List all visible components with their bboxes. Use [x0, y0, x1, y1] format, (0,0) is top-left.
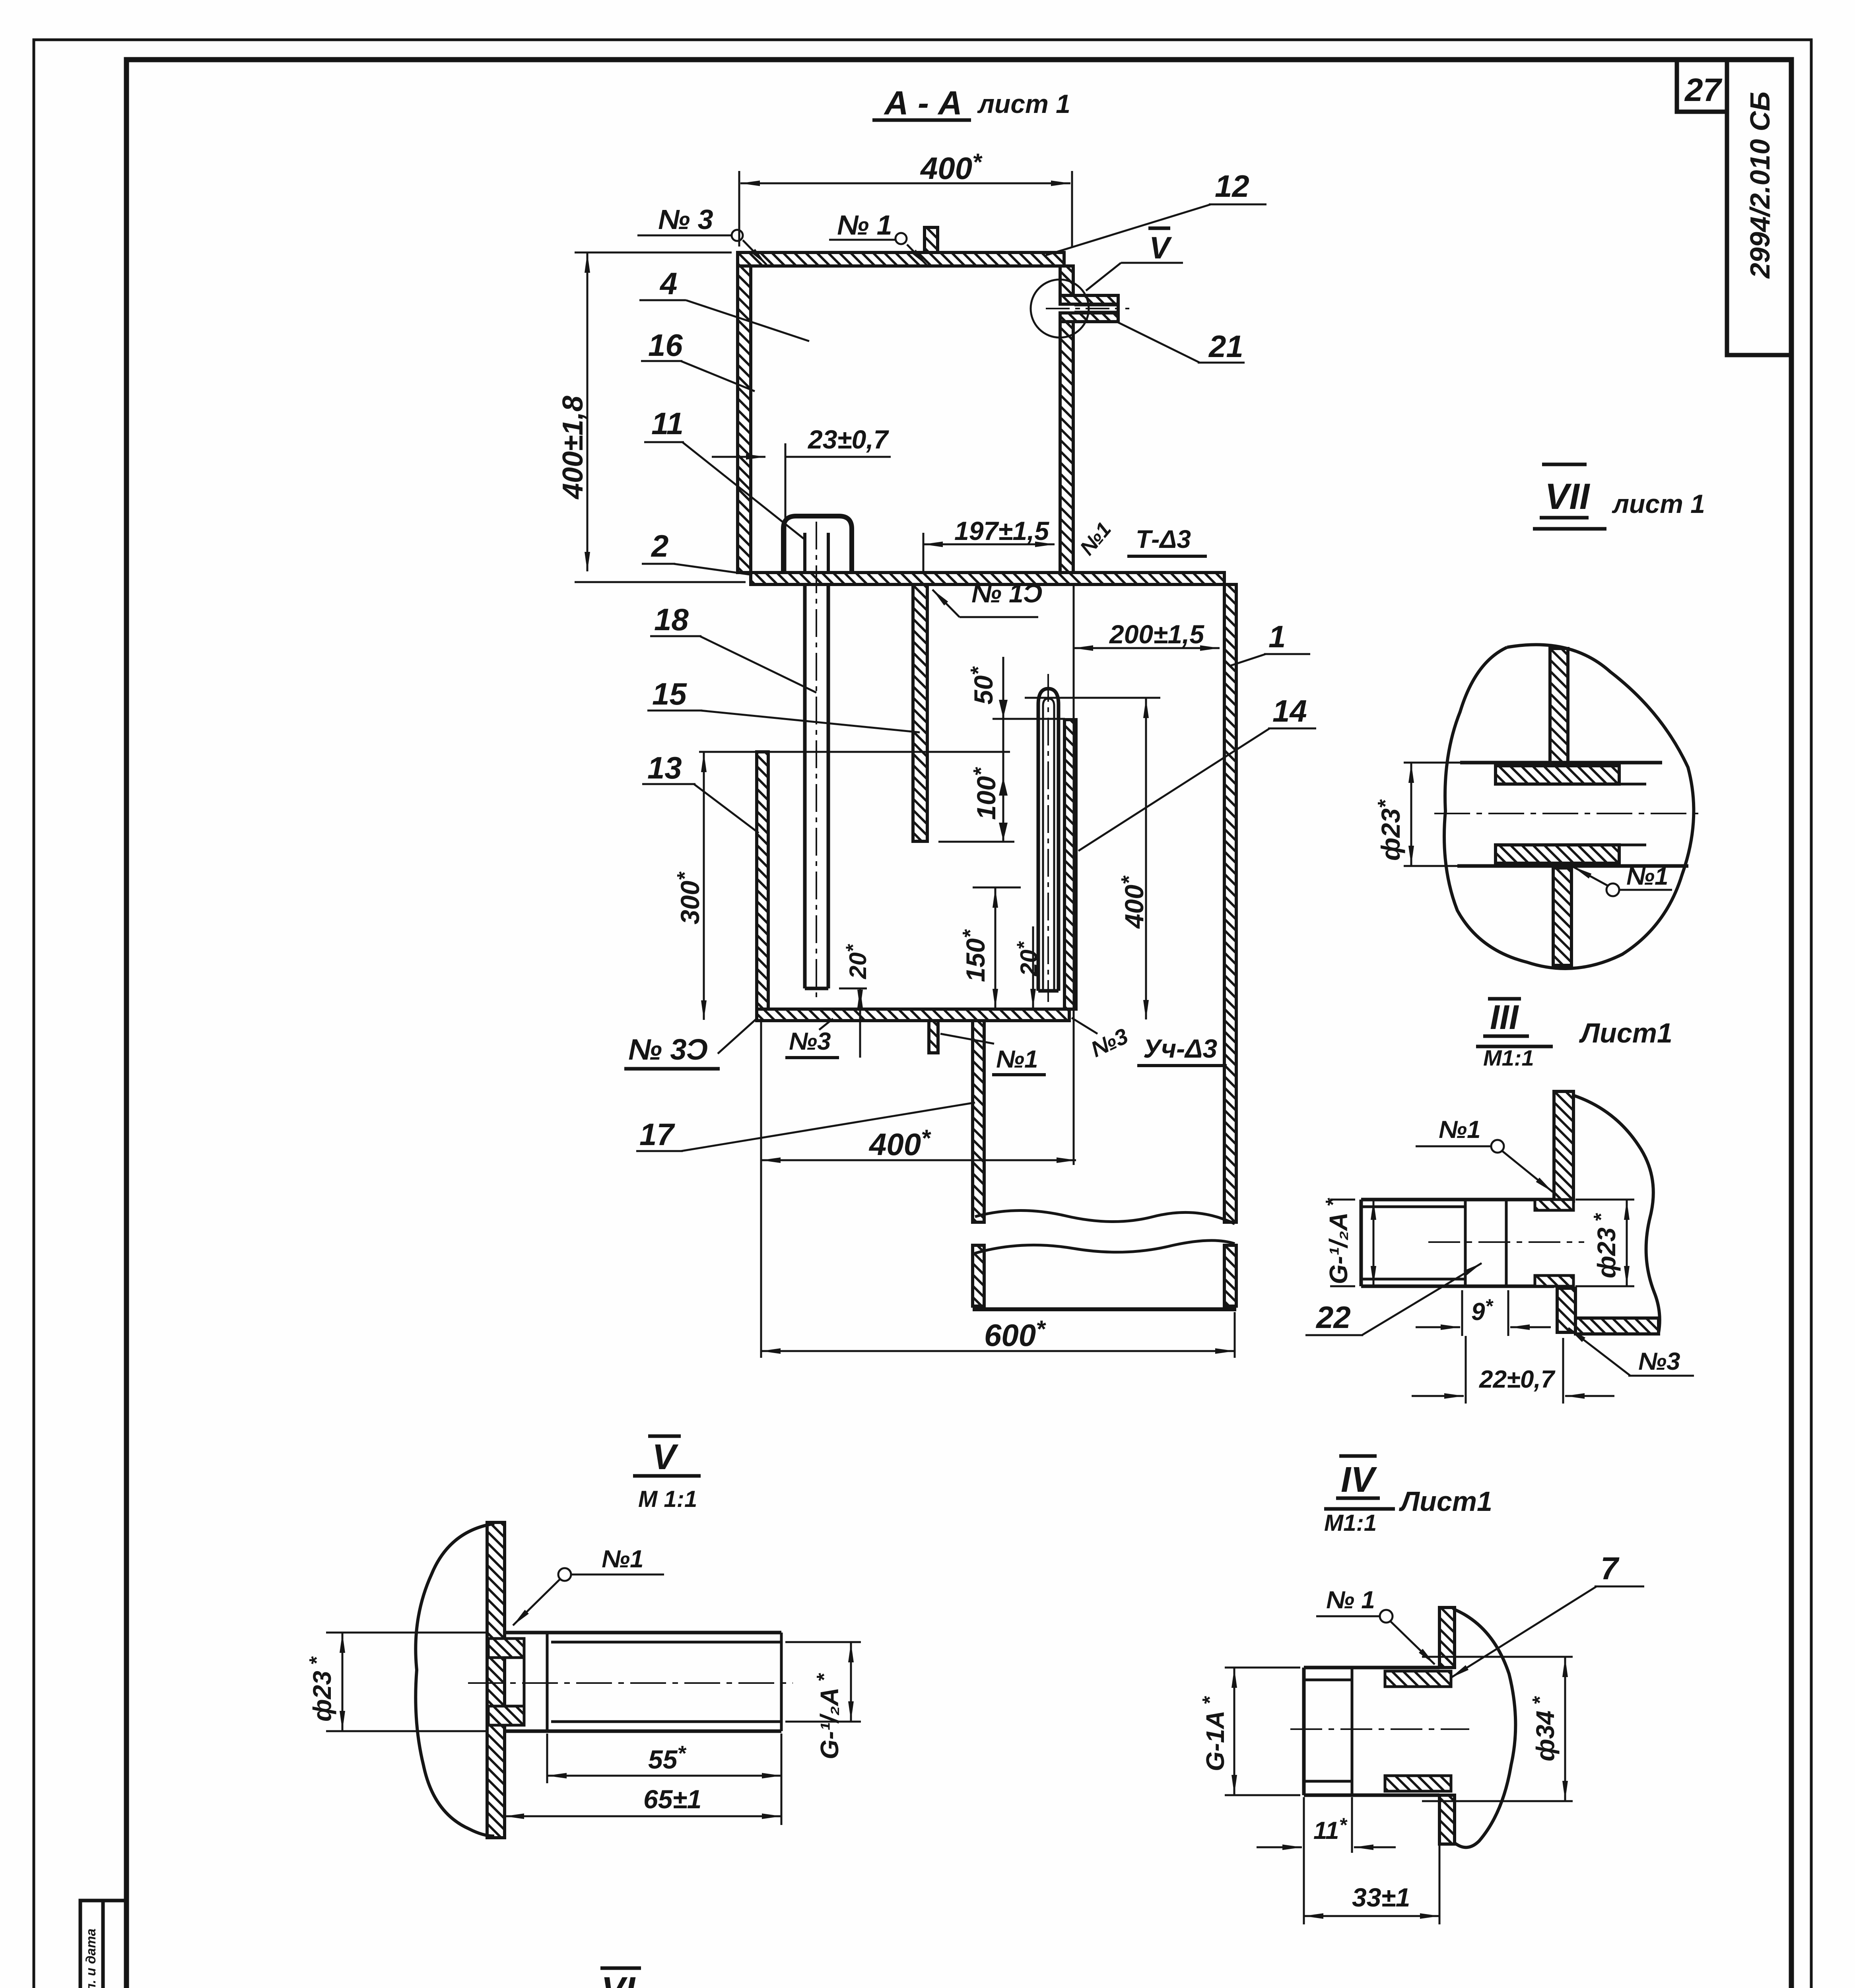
svg-text:№3: №3	[1638, 1348, 1680, 1375]
svg-text:№1: №1	[1626, 863, 1669, 890]
svg-text:№1: №1	[602, 1545, 644, 1573]
svg-text:400*: 400*	[868, 1125, 931, 1162]
svg-text:G-¹/₂A *: G-¹/₂A *	[1322, 1198, 1353, 1284]
svg-text:2: 2	[651, 528, 668, 563]
svg-text:Уч-Δ3: Уч-Δ3	[1143, 1034, 1217, 1063]
svg-text:197±1,5: 197±1,5	[954, 516, 1049, 546]
svg-text:М1:1: М1:1	[1324, 1510, 1377, 1536]
svg-text:17: 17	[639, 1117, 675, 1152]
svg-text:Лист1: Лист1	[1399, 1486, 1492, 1517]
svg-text:Лист 1: Лист 1	[671, 1982, 772, 1988]
svg-text:IV: IV	[1341, 1460, 1377, 1500]
svg-text:400*: 400*	[1117, 875, 1149, 929]
svg-text:№1: №1	[1439, 1116, 1481, 1143]
svg-text:14: 14	[1272, 693, 1307, 728]
svg-text:Подп. и дата: Подп. и дата	[84, 1928, 99, 1988]
svg-text:15: 15	[652, 676, 687, 711]
svg-text:23±0,7: 23±0,7	[807, 425, 890, 454]
svg-text:М 1:1: М 1:1	[638, 1486, 697, 1512]
svg-text:№1: №1	[1076, 518, 1116, 560]
svg-text:21: 21	[1208, 329, 1243, 364]
svg-text:VII: VII	[1545, 476, 1591, 517]
svg-text:1: 1	[1268, 619, 1286, 654]
svg-text:7: 7	[1601, 1551, 1620, 1586]
svg-text:Т-Δ3: Т-Δ3	[1136, 525, 1191, 553]
svg-text:А - А: А - А	[884, 84, 962, 122]
svg-text:III: III	[1490, 998, 1519, 1037]
svg-text:№ 1: № 1	[837, 210, 892, 241]
svg-text:V: V	[652, 1437, 679, 1477]
svg-text:ф23 *: ф23 *	[305, 1656, 336, 1722]
svg-text:G-1A *: G-1A *	[1198, 1696, 1230, 1771]
svg-text:9*: 9*	[1471, 1295, 1494, 1326]
svg-text:55*: 55*	[648, 1741, 687, 1774]
svg-text:400±1,8: 400±1,8	[557, 396, 589, 500]
svg-text:V: V	[1149, 230, 1172, 265]
svg-text:№1: №1	[996, 1046, 1038, 1073]
svg-text:50*: 50*	[966, 666, 998, 705]
svg-text:G-¹/₂A *: G-¹/₂A *	[813, 1673, 844, 1759]
svg-text:№3: №3	[789, 1028, 831, 1055]
svg-text:ф23 *: ф23 *	[1590, 1213, 1621, 1278]
svg-text:600*: 600*	[984, 1316, 1046, 1353]
svg-text:100*: 100*	[969, 767, 1001, 820]
svg-text:М1:1: М1:1	[1483, 1045, 1534, 1070]
svg-text:лист 1: лист 1	[1612, 489, 1705, 518]
svg-text:150*: 150*	[958, 929, 990, 982]
svg-text:№ 3: № 3	[658, 204, 713, 235]
svg-text:2994/2.010 СБ: 2994/2.010 СБ	[1744, 91, 1775, 279]
svg-text:16: 16	[648, 328, 683, 363]
svg-text:33±1: 33±1	[1352, 1883, 1410, 1912]
svg-text:4: 4	[659, 266, 677, 301]
svg-text:ф34 *: ф34 *	[1529, 1696, 1560, 1761]
svg-text:11: 11	[651, 406, 684, 441]
svg-text:ф23*: ф23*	[1373, 799, 1405, 861]
svg-text:13: 13	[647, 750, 682, 785]
svg-text:№ 3Ɔ: № 3Ɔ	[628, 1033, 708, 1066]
svg-text:65±1: 65±1	[643, 1784, 701, 1814]
svg-text:27: 27	[1684, 72, 1723, 108]
svg-text:400*: 400*	[920, 149, 983, 186]
svg-text:№ 1Ɔ: № 1Ɔ	[971, 579, 1042, 608]
svg-text:18: 18	[654, 602, 689, 637]
svg-text:200±1,5: 200±1,5	[1109, 619, 1204, 649]
svg-text:№ 1: № 1	[1326, 1586, 1375, 1614]
svg-text:300*: 300*	[673, 871, 705, 924]
svg-text:20*: 20*	[842, 944, 871, 979]
svg-text:№3: №3	[1087, 1023, 1132, 1062]
svg-text:22±0,7: 22±0,7	[1479, 1366, 1556, 1393]
svg-text:лист 1: лист 1	[977, 89, 1070, 118]
svg-text:11*: 11*	[1313, 1814, 1348, 1844]
svg-text:22: 22	[1315, 1300, 1351, 1335]
svg-text:Лист1: Лист1	[1579, 1017, 1672, 1048]
svg-text:12: 12	[1215, 169, 1249, 204]
svg-text:VI: VI	[601, 1970, 636, 1988]
